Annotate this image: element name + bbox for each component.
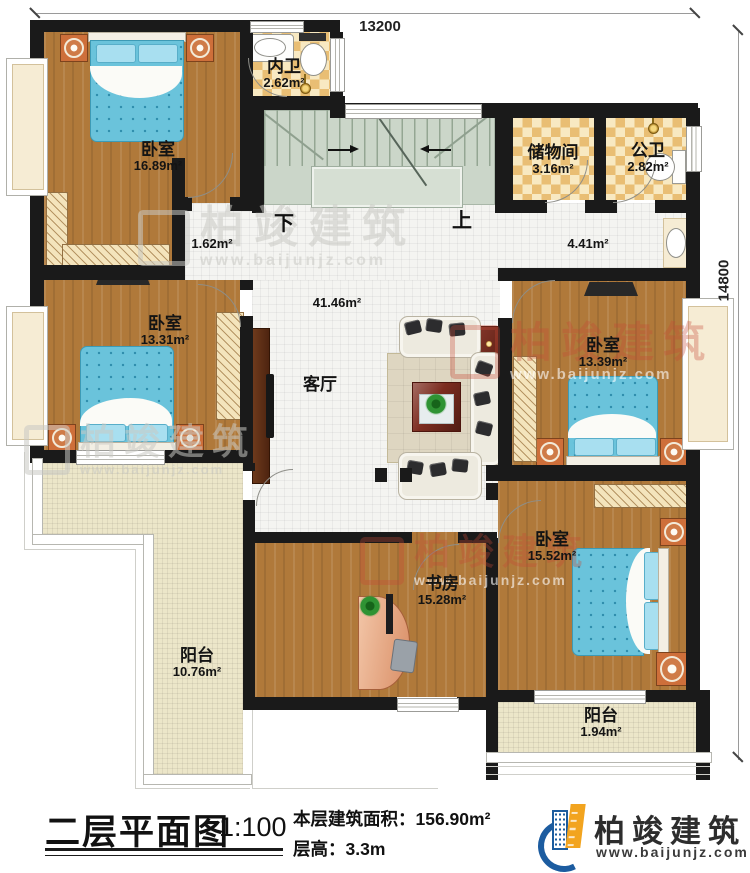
wardrobe (513, 356, 537, 462)
sliding-door (76, 450, 165, 465)
dimension-line-right (738, 30, 739, 760)
roof-outline (252, 788, 438, 789)
pillow (86, 424, 126, 442)
room-label-storage: 储物间 3.16m² (528, 144, 579, 176)
wall (30, 265, 185, 280)
wall (400, 468, 412, 482)
pillow (128, 424, 168, 442)
lamp-icon (648, 123, 659, 134)
tv-icon (584, 282, 638, 296)
wall (644, 690, 698, 702)
floor-area-line: 本层建筑面积：156.90m² (293, 806, 490, 831)
nightstand (186, 34, 214, 62)
room-label-public-bath: 公卫 2.82m² (627, 142, 668, 174)
toilet-tank (299, 33, 326, 41)
room-area-living: 41.46m² (313, 296, 361, 310)
cabinet-lamp-icon (486, 341, 492, 347)
roof-outline (24, 549, 136, 550)
pillow (574, 438, 614, 456)
wall (486, 538, 498, 707)
floor-balcony-left-a (42, 463, 243, 538)
dimension-right-value: 14800 (716, 241, 733, 321)
bay-window (688, 306, 728, 442)
dimension-top-value: 13200 (340, 18, 420, 35)
pillow (138, 44, 178, 63)
sink-icon (254, 38, 286, 57)
room-label-study: 书房 15.28m² (418, 575, 466, 607)
window (686, 126, 702, 172)
wall (163, 450, 252, 463)
stair-arrow-right-icon (350, 145, 359, 153)
room-label-living: 客厅 (303, 376, 337, 394)
room-label-inner-bath: 内卫 2.62m² (263, 58, 304, 90)
wall (498, 268, 698, 281)
floor-height-label: 层高： (293, 839, 346, 859)
dimension-line-top (35, 13, 695, 14)
wall (375, 468, 387, 482)
balcony-railing (486, 752, 712, 763)
wall (30, 20, 44, 62)
stair-arrow-left-line (429, 149, 451, 151)
wall (486, 483, 498, 500)
floor-area-label: 本层建筑面积： (293, 809, 416, 829)
window (250, 21, 304, 33)
stair-landing (312, 167, 462, 207)
stair-down-label: 下 (274, 207, 294, 236)
room-label-bedroom-br: 卧室 15.52m² (528, 531, 576, 563)
wall (686, 468, 700, 692)
wall (230, 197, 264, 211)
sliding-door (534, 690, 646, 704)
office-chair (390, 638, 418, 673)
roof-outline (252, 710, 253, 788)
room-label-hall: 4.41m² (567, 237, 608, 251)
balcony-railing (143, 534, 154, 784)
pillow (96, 44, 136, 63)
plant-icon (358, 594, 382, 618)
title-underline (45, 848, 283, 856)
room-label-bedroom-r: 卧室 13.39m² (579, 337, 627, 369)
wall (655, 200, 698, 213)
wall (255, 532, 412, 543)
nightstand (60, 34, 88, 62)
nightstand (660, 518, 688, 546)
wall (498, 318, 512, 465)
room-label-bedroom-tl: 卧室 16.89m² (134, 141, 182, 173)
window (397, 698, 459, 712)
bed-headboard (658, 548, 669, 656)
sofa-pillow (425, 318, 443, 333)
roof-outline (135, 788, 250, 789)
sofa-pillow (429, 462, 447, 478)
wardrobe (594, 484, 688, 508)
plant-icon (424, 392, 448, 416)
floor-plan-page: 柏竣建筑 www.baijunjz.com 柏竣建筑 www.baijunjz.… (0, 0, 750, 873)
floor-height-line: 层高：3.3m (293, 836, 385, 861)
room-label-bedroom-ml: 卧室 13.31m² (141, 315, 189, 347)
nightstand (656, 652, 688, 686)
wall (30, 190, 44, 268)
balcony-railing (32, 534, 154, 545)
pillow (616, 438, 656, 456)
nightstand (176, 424, 204, 452)
wall (686, 170, 700, 310)
wall (172, 158, 185, 268)
wall (486, 465, 698, 481)
stair-arrow-right-line (328, 149, 350, 151)
sofa-pillow (448, 322, 465, 337)
tv-icon (266, 374, 274, 438)
window (345, 104, 482, 119)
brand-url: www.baijunjz.com (596, 844, 749, 860)
roof-outline (24, 452, 25, 550)
wall (243, 697, 397, 710)
window (330, 38, 345, 92)
nightstand (48, 424, 76, 452)
wall (594, 118, 606, 213)
monitor-icon (386, 594, 393, 634)
plan-scale: 1:100 (219, 812, 287, 843)
wall (495, 200, 547, 213)
stair-up-label: 上 (452, 204, 472, 233)
wall (495, 118, 513, 213)
stair-arrow-left-icon (420, 145, 429, 153)
floor-area-value: 156.90m² (416, 809, 491, 829)
floor-height-value: 3.3m (346, 839, 386, 859)
roof-outline (135, 549, 136, 789)
balcony-railing (32, 458, 43, 544)
nightstand (536, 438, 564, 466)
wall (686, 108, 700, 126)
roof-outline (486, 766, 710, 767)
wall (243, 500, 255, 707)
wall (243, 463, 255, 471)
sofa-pillow (451, 458, 468, 473)
room-label-balcony-l: 阳台 10.76m² (173, 647, 221, 679)
room-label-balcony-r: 阳台 1.94m² (580, 707, 621, 739)
roof-outline (486, 774, 710, 775)
room-label-hall-small: 1.62m² (191, 237, 232, 251)
wall (240, 280, 253, 290)
balcony-railing (143, 774, 252, 785)
wall (240, 316, 253, 463)
sink-icon (666, 228, 686, 258)
bay-window (12, 64, 44, 190)
bay-window (12, 312, 44, 440)
